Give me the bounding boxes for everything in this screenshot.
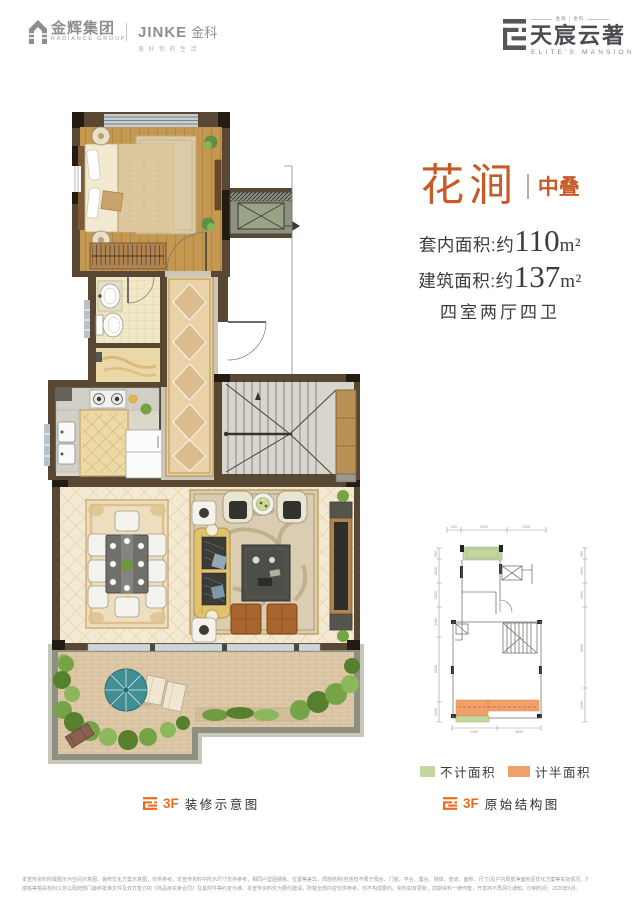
bedroom-bench [215, 160, 221, 210]
header-divider [126, 23, 127, 41]
toilet [96, 313, 123, 337]
caption-left-label: 装修示意图 [185, 794, 260, 813]
title-separator [527, 174, 529, 199]
legend-item-half: 计半面积 [508, 762, 591, 781]
caption-right-label: 原始结构图 [485, 794, 560, 813]
svg-text:3400: 3400 [480, 525, 488, 529]
inner-area-label: 套内面积:约 [419, 235, 514, 255]
build-area-value: 137 [514, 259, 561, 294]
legend-swatch-green [420, 766, 435, 777]
structural-plan: 650 3400 2050 900 2600 2500 3300 6500 20… [420, 512, 600, 738]
legend-item-excluded: 不计面积 [420, 762, 496, 781]
coffee-table [242, 545, 290, 601]
staircase [214, 374, 360, 482]
svg-text:2600: 2600 [434, 567, 438, 575]
table-centerpiece-plant [121, 559, 133, 571]
elevator [230, 188, 300, 238]
mini-terrace-orange [456, 700, 539, 716]
unit-name: 花涧 [420, 163, 518, 209]
unit-tag: 中叠 [538, 171, 580, 201]
svg-text:2050: 2050 [522, 525, 530, 529]
svg-text:2500: 2500 [580, 591, 584, 599]
jinke-tagline: 美好你的生活 [138, 44, 217, 53]
svg-text:3300: 3300 [434, 618, 438, 626]
dining-set [86, 500, 168, 628]
svg-text:6000: 6000 [580, 644, 584, 652]
radiance-cn: 金辉集团 [51, 21, 126, 36]
radiance-group-logo-icon [27, 20, 49, 44]
legend-label: 不计面积 [440, 762, 496, 781]
brand-name-en: ELITE'S MANSION [531, 49, 635, 56]
legend-swatch-orange [508, 766, 530, 777]
legend-label: 计半面积 [535, 762, 591, 781]
brand-small-text: 金辉 | 金科 [556, 16, 585, 22]
build-area-label: 建筑面积:约 [418, 271, 513, 291]
brand-mark-small-icon [143, 797, 157, 810]
unit-title-row: 花涧 中叠 [398, 163, 602, 209]
caption-right: 3F 原始结构图 [443, 794, 560, 813]
caption-right-floor: 3F [463, 796, 479, 811]
brand-name: 天宸云著 [530, 24, 626, 48]
svg-text:2550: 2550 [470, 730, 478, 734]
stove [90, 390, 126, 408]
terrace [48, 644, 364, 764]
living-dining-room [52, 476, 360, 651]
entry-door [218, 271, 266, 360]
svg-text:6500: 6500 [434, 665, 438, 673]
brand-mark-icon [503, 19, 526, 50]
svg-text:2000: 2000 [434, 708, 438, 716]
stair-shelf [336, 390, 356, 474]
svg-text:2500: 2500 [434, 591, 438, 599]
caption-left: 3F 装修示意图 [143, 794, 260, 813]
floorplan-render [44, 110, 370, 766]
svg-text:2000: 2000 [580, 701, 584, 709]
bed [78, 144, 173, 232]
bathroom [84, 271, 167, 387]
jinke-logo: JINKE 金科 美好你的生活 [138, 22, 217, 53]
jinke-en: JINKE [138, 24, 187, 41]
inner-area-unit: m² [560, 235, 581, 256]
svg-text:2600: 2600 [580, 567, 584, 575]
jinke-cn: 金科 [191, 22, 217, 41]
brochure-page: 金辉集团 RADIANCE GROUP JINKE 金科 美好你的生活 金辉 |… [0, 0, 640, 920]
tv-console [330, 490, 352, 642]
sofa [194, 524, 230, 622]
inner-area-line: 套内面积:约110m² [398, 223, 602, 259]
wardrobe [90, 243, 166, 269]
inner-area-value: 110 [514, 223, 559, 258]
build-area-unit: m² [560, 271, 581, 292]
legend: 不计面积 计半面积 [420, 762, 591, 781]
brand-mark-small-icon [443, 797, 457, 810]
brand-small-top: 金辉 | 金科 [531, 16, 609, 22]
bath-sink [100, 284, 120, 308]
living-window [88, 644, 320, 651]
shower-fixture [96, 352, 102, 362]
svg-text:900: 900 [580, 551, 584, 557]
radiance-group-logo: 金辉集团 RADIANCE GROUP [51, 21, 126, 43]
build-area-line: 建筑面积:约137m² [398, 259, 602, 295]
svg-text:3600: 3600 [515, 730, 523, 734]
radiance-en: RADIANCE GROUP [51, 36, 126, 43]
kitchen [44, 380, 165, 480]
disclaimer-line-2: 楼栋等相关权利义务以政府部门最终批准文件及双方签订的《商品房买卖合同》及其附件等… [22, 885, 588, 894]
hallway [161, 271, 218, 480]
disclaimer: 本宣传资料所载图示为空间示意图，装修优化方案示意图，仅供参考。本宣传资料中所示尺… [22, 876, 588, 894]
caption-left-floor: 3F [163, 796, 179, 811]
fridge [126, 430, 162, 478]
patio-umbrella [105, 669, 147, 711]
bedroom-window [72, 166, 81, 192]
mini-plan-outline [451, 545, 542, 722]
bedroom-balcony-window [104, 114, 198, 127]
shower-room [96, 348, 160, 382]
disclaimer-line-1: 本宣传资料所载图示为空间示意图，装修优化方案示意图，仅供参考。本宣传资料中所示尺… [22, 876, 588, 885]
mini-garden-green [456, 716, 489, 722]
svg-text:900: 900 [434, 551, 438, 557]
bedroom [72, 112, 230, 277]
rooms-line: 四室两厅四卫 [398, 298, 602, 323]
svg-text:650: 650 [451, 525, 457, 529]
bath-window [84, 300, 90, 338]
elevator-door-arrow [292, 221, 300, 231]
